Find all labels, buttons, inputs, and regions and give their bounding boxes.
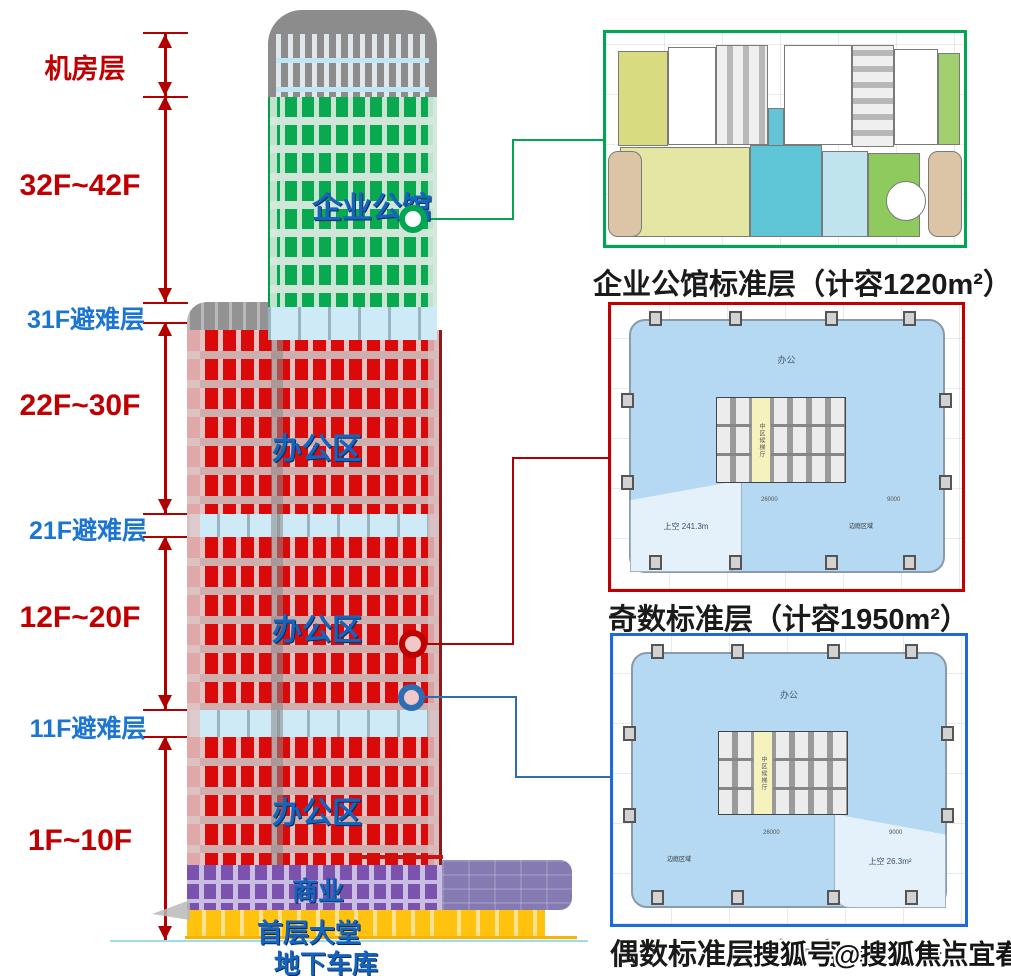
column [621, 393, 634, 408]
label-1f-10f: 1F~10F [5, 824, 155, 858]
facade-edge-left [187, 330, 200, 865]
label-office-top: 办公区 [257, 424, 377, 468]
dim-arrow [158, 926, 172, 940]
column [649, 555, 662, 570]
watermark-text: 搜狐号@搜狐焦点宜春站 [753, 933, 1011, 972]
column [905, 644, 918, 659]
facade-core-strip [271, 330, 283, 865]
column [731, 644, 744, 659]
label-refuge-21f: 21F避难层 [18, 511, 158, 547]
dim-arrow [158, 695, 172, 709]
ground-line-yellow [185, 936, 577, 939]
plan1-teal-cell [768, 108, 784, 146]
floorplan-mansion [603, 30, 967, 248]
plan1-room-a [668, 47, 716, 145]
label-22f-30f: 22F~30F [5, 389, 155, 423]
plan1-core-a [716, 45, 768, 145]
marker-even-floor [398, 684, 425, 711]
plan1-bedroom-cluster [822, 151, 868, 237]
label-machine-floor: 机房层 [20, 47, 150, 86]
floorplan-even-drawing: 上空 26.3m² 中区候梯厅 办公 边庭区域 26000 9000 [613, 636, 965, 924]
connector-green [512, 139, 604, 141]
connector-blue [515, 696, 517, 778]
label-commercial: 商业 [283, 871, 353, 908]
plan3-core-lobby-label: 中区候梯厅 [760, 756, 766, 791]
connector-red [427, 643, 514, 645]
plan2-side-label: 边庭区域 [849, 521, 873, 530]
dim-line [164, 96, 167, 302]
plan1-left-rooms [618, 51, 668, 146]
column [825, 555, 838, 570]
connector-red [512, 457, 514, 645]
column [729, 555, 742, 570]
podium-commercial-wing [442, 860, 572, 910]
column [827, 890, 840, 905]
column [903, 311, 916, 326]
plan2-core: 中区候梯厅 [716, 397, 846, 483]
dim-arrow [158, 96, 172, 110]
column [623, 726, 636, 741]
floorplan-odd: 上空 241.3m 中区候梯厅 办公 边庭区域 26000 9000 [608, 302, 965, 592]
dim-line [164, 536, 167, 709]
plan3-dim-b: 9000 [889, 830, 902, 836]
upper-tower [268, 10, 437, 330]
label-32f-42f: 32F~42F [5, 169, 155, 203]
lower-tower-cap [187, 302, 275, 330]
dim-arrow [158, 82, 172, 96]
connector-red [512, 457, 609, 459]
plan2-office-label: 办公 [611, 353, 962, 366]
connector-blue [424, 696, 517, 698]
column [827, 644, 840, 659]
dim-arrow [158, 288, 172, 302]
refuge-band-21f [187, 514, 442, 537]
facade-edge-right [428, 330, 442, 865]
machine-room-windows [276, 34, 429, 97]
plan2-void-label: 上空 241.3m [664, 521, 709, 532]
plan3-void-label: 上空 26.3m² [868, 856, 911, 867]
column [903, 555, 916, 570]
dim-arrow [158, 499, 172, 513]
plan2-core-lobby: 中区候梯厅 [751, 398, 771, 482]
column [651, 890, 664, 905]
podium-lobby-band [442, 910, 545, 938]
plan1-core-b [852, 45, 894, 147]
marker-mansion [399, 205, 427, 233]
floorplan-odd-drawing: 上空 241.3m 中区候梯厅 办公 边庭区域 26000 9000 [611, 305, 962, 589]
plan2-core-lobby-label: 中区候梯厅 [758, 423, 764, 458]
column [729, 311, 742, 326]
dim-arrow [158, 536, 172, 550]
column [651, 644, 664, 659]
plan1-terrace-left [608, 151, 642, 237]
column [621, 475, 634, 490]
caption-mansion: 企业公馆标准层（计容1220m²） [593, 261, 977, 303]
floorplan-mansion-drawing [606, 33, 964, 245]
label-refuge-31f: 31F避难层 [16, 300, 156, 336]
column [825, 311, 838, 326]
facade-22f-30f [187, 330, 442, 514]
dim-arrow [158, 322, 172, 336]
column [939, 393, 952, 408]
facade-green-edge-left [268, 97, 277, 307]
plan1-hall-center [750, 145, 822, 237]
floorplan-even: 上空 26.3m² 中区候梯厅 办公 边庭区域 26000 9000 [610, 633, 968, 927]
entrance-canopy [152, 900, 190, 920]
plan3-core: 中区候梯厅 [718, 731, 848, 815]
plan3-side-label: 边庭区域 [667, 854, 691, 863]
dim-arrow [158, 34, 172, 48]
column [731, 890, 744, 905]
plan3-office-label: 办公 [613, 688, 965, 701]
tower-red-ledge [355, 855, 443, 859]
label-12f-20f: 12F~20F [5, 601, 155, 635]
column [623, 808, 636, 823]
plan1-room-c [894, 49, 938, 145]
plan2-dim-a: 26000 [761, 497, 778, 503]
building-section-diagram: 机房层 32F~42F 31F避难层 22F~30F 21F避难层 12F~20… [0, 0, 1011, 976]
label-garage: 地下车库 [262, 944, 390, 976]
plan3-dim-a: 26000 [763, 830, 780, 836]
refuge-band-11f [187, 710, 442, 737]
connector-blue [515, 776, 611, 778]
dim-line [164, 322, 167, 513]
label-office-mid: 办公区 [257, 605, 377, 649]
plan1-round-room [886, 181, 926, 221]
label-refuge-11f: 11F避难层 [18, 709, 158, 745]
plan2-dim-b: 9000 [887, 497, 900, 503]
connector-green [512, 139, 514, 220]
column [649, 311, 662, 326]
plan1-right-rooms [938, 53, 960, 145]
caption-odd: 奇数标准层（计容1950m²） [608, 596, 968, 638]
column [939, 475, 952, 490]
refuge-band-31f [268, 307, 437, 340]
dim-arrow [158, 736, 172, 750]
machine-room-cap [268, 10, 437, 97]
plan3-core-lobby: 中区候梯厅 [753, 732, 773, 814]
column [905, 890, 918, 905]
marker-odd-floor [399, 630, 427, 658]
label-office-low: 办公区 [257, 788, 377, 832]
column [941, 808, 954, 823]
plan1-room-b [784, 45, 852, 145]
plan1-terrace-right [928, 151, 962, 237]
column [941, 726, 954, 741]
